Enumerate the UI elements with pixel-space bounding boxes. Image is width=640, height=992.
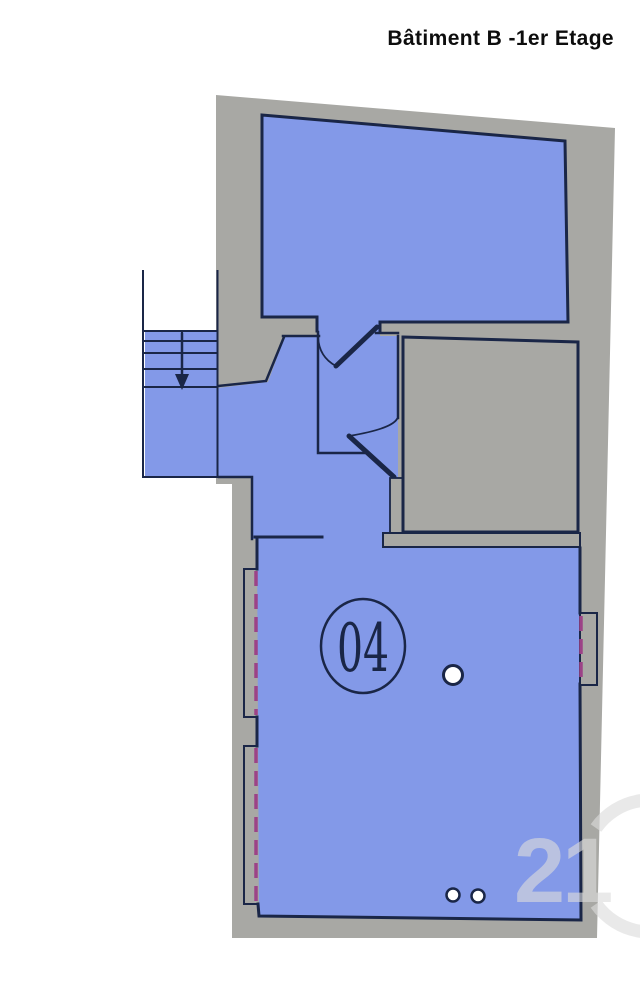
floor-plan: 04 21	[0, 0, 640, 992]
fixture-dot-small-1	[447, 889, 460, 902]
fixture-dot-small-2	[472, 890, 485, 903]
room-top-fill	[262, 115, 568, 336]
room-main-top-wall-band	[383, 533, 580, 547]
staircase	[143, 271, 218, 477]
watermark-century21: 21	[514, 800, 640, 932]
floor-plan-page: Bâtiment B -1er Etage	[0, 0, 640, 992]
closet-lower-wall-band	[390, 478, 403, 537]
room-number-label: 04	[337, 610, 389, 687]
watermark-number: 21	[514, 820, 611, 922]
fixture-dot-large	[444, 666, 463, 685]
room-top	[262, 115, 568, 336]
